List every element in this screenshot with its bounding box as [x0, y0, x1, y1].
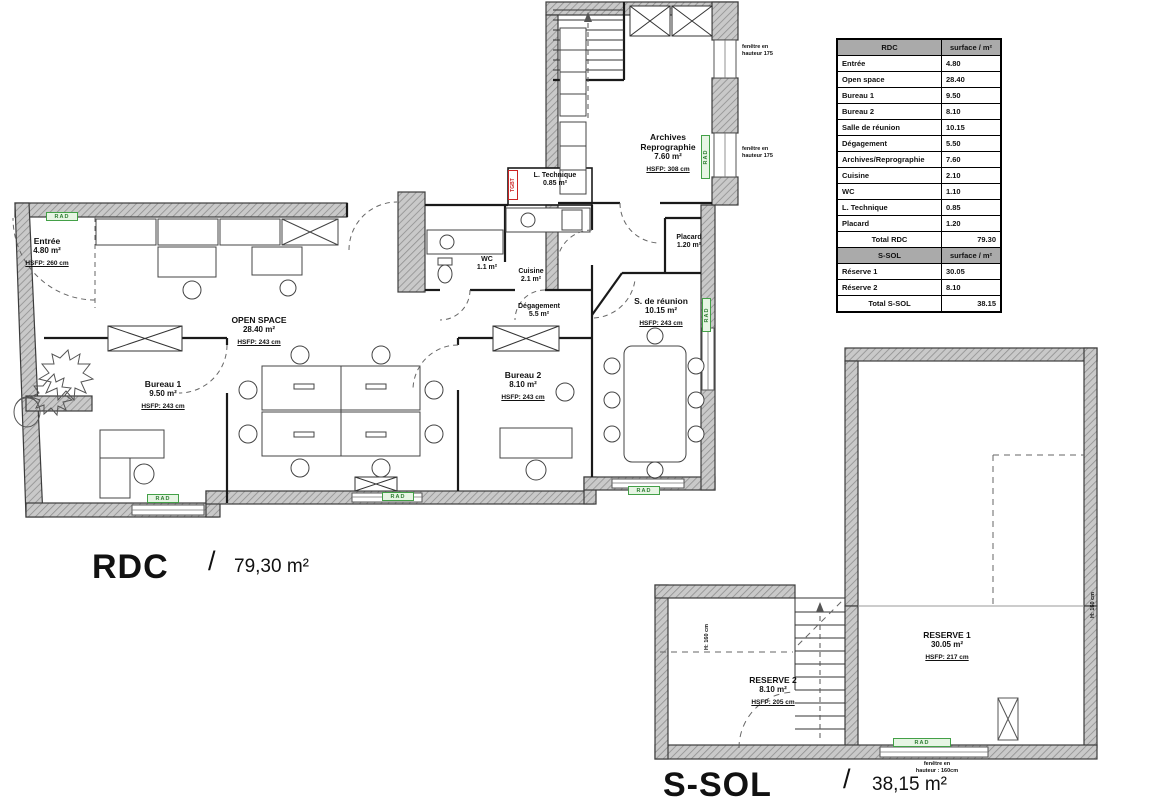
table-row: Réserve 1 30.05: [837, 264, 1001, 280]
header-cell: S-SOL: [837, 248, 942, 264]
height-note-left: H: 160 cm: [704, 624, 711, 650]
rdc-separator: /: [208, 546, 216, 577]
furniture-bureau1: [100, 430, 164, 498]
radiator-tag: RAD: [46, 212, 78, 221]
cell-value: 0.85: [942, 200, 1002, 216]
window-note-175-top: fenêtre en hauteur 175: [742, 44, 773, 58]
table-row-total-rdc: Total RDC 79.30: [837, 232, 1001, 248]
room-label-wc: WC 1.1 m²: [477, 256, 497, 273]
table-row: Bureau 2 8.10: [837, 104, 1001, 120]
window-note-160: fenêtre en hauteur : 160cm: [916, 761, 958, 775]
room-label-bureau1: Bureau 1 9.50 m² HSFP: 243 cm: [141, 379, 184, 411]
cell-value: 2.10: [942, 168, 1002, 184]
room-label-open-space: OPEN SPACE 28.40 m² HSFP: 243 cm: [231, 315, 286, 347]
room-label-l-technique: L. Technique 0.85 m²: [534, 172, 577, 189]
tgbt-panel-tag: TGBT: [508, 170, 518, 200]
cell-value: 1.10: [942, 184, 1002, 200]
radiator-tag-vertical: RAD: [701, 135, 710, 179]
fixtures-wc-cuisine: [427, 208, 590, 283]
cell-label: Placard: [837, 216, 942, 232]
furniture-meeting: [604, 328, 704, 478]
header-cell: RDC: [837, 39, 942, 56]
ssol-total-area: 38,15 m²: [872, 774, 947, 796]
cell-value: 30.05: [942, 264, 1002, 280]
radiator-tag: RAD: [893, 738, 951, 747]
table-row: Open space 28.40: [837, 72, 1001, 88]
room-label-reserve2: RESERVE 2 8.10 m² HSFP: 205 cm: [749, 675, 797, 707]
cell-value: 7.60: [942, 152, 1002, 168]
window-note-175-bottom: fenêtre en hauteur 175: [742, 146, 773, 160]
cell-value: 1.20: [942, 216, 1002, 232]
table-row: Archives/Reprographie 7.60: [837, 152, 1001, 168]
header-cell: surface / m²: [942, 39, 1002, 56]
cell-label: Réserve 1: [837, 264, 942, 280]
radiator-tag: RAD: [628, 486, 660, 495]
room-label-cuisine: Cuisine 2.1 m²: [518, 268, 543, 285]
cell-value: 8.10: [942, 280, 1002, 296]
rdc-title: RDC: [92, 548, 169, 587]
radiator-tag: RAD: [382, 492, 414, 501]
table-row: L. Technique 0.85: [837, 200, 1001, 216]
cell-label: Total RDC: [837, 232, 942, 248]
archives-shelves: [560, 28, 586, 194]
cell-value: 79.30: [942, 232, 1002, 248]
room-label-entree: Entrée 4.80 m² HSFP: 260 cm: [25, 236, 68, 268]
ssol-stairs: [795, 598, 845, 738]
cell-label: Bureau 2: [837, 104, 942, 120]
table-row-total-ssol: Total S-SOL 38.15: [837, 296, 1001, 313]
cell-label: WC: [837, 184, 942, 200]
room-label-reserve1: RESERVE 1 30.05 m² HSFP: 217 cm: [923, 630, 971, 662]
table-row: Placard 1.20: [837, 216, 1001, 232]
table-header-ssol: S-SOL surface / m²: [837, 248, 1001, 264]
header-cell: surface / m²: [942, 248, 1002, 264]
cell-label: Open space: [837, 72, 942, 88]
cell-label: Bureau 1: [837, 88, 942, 104]
cell-value: 28.40: [942, 72, 1002, 88]
room-label-reunion: S. de réunion 10.15 m² HSFP: 243 cm: [634, 296, 688, 328]
table-row: Cuisine 2.10: [837, 168, 1001, 184]
cell-value: 38.15: [942, 296, 1002, 313]
rdc-total-area: 79,30 m²: [234, 556, 309, 578]
radiator-tag: RAD: [147, 494, 179, 503]
room-label-archives: Archives Reprographie 7.60 m² HSFP: 308 …: [640, 132, 695, 174]
openspace-cabinets: [96, 219, 338, 299]
table-row: Bureau 1 9.50: [837, 88, 1001, 104]
cell-label: Réserve 2: [837, 280, 942, 296]
cell-label: Dégagement: [837, 136, 942, 152]
ssol-title: S-SOL: [663, 766, 772, 800]
surface-table: RDC surface / m² Entrée 4.80 Open space …: [836, 38, 1002, 313]
room-label-bureau2: Bureau 2 8.10 m² HSFP: 243 cm: [501, 370, 544, 402]
table-header-rdc: RDC surface / m²: [837, 39, 1001, 56]
ssol-separator: /: [843, 764, 851, 795]
cell-value: 5.50: [942, 136, 1002, 152]
cell-label: Archives/Reprographie: [837, 152, 942, 168]
ssol-dashed: [660, 455, 1084, 748]
room-label-placard: Placard 1.20 m²: [676, 234, 701, 251]
table-row: Entrée 4.80: [837, 56, 1001, 72]
furniture-open-space: [239, 346, 443, 477]
cell-value: 8.10: [942, 104, 1002, 120]
cell-label: Cuisine: [837, 168, 942, 184]
cell-value: 4.80: [942, 56, 1002, 72]
table-row: Salle de réunion 10.15: [837, 120, 1001, 136]
cell-label: Salle de réunion: [837, 120, 942, 136]
room-label-degagement: Dégagement 5.5 m²: [518, 303, 560, 320]
cell-label: Entrée: [837, 56, 942, 72]
ssol-walls: [655, 348, 1097, 759]
cell-value: 9.50: [942, 88, 1002, 104]
radiator-tag-vertical: RAD: [702, 298, 711, 332]
cell-label: Total S-SOL: [837, 296, 942, 313]
floor-plan-page: Entrée 4.80 m² HSFP: 260 cm OPEN SPACE 2…: [0, 0, 1158, 800]
height-note-right: H: 160 cm: [1090, 592, 1097, 618]
cell-value: 10.15: [942, 120, 1002, 136]
cell-label: L. Technique: [837, 200, 942, 216]
table-row: WC 1.10: [837, 184, 1001, 200]
table-row: Réserve 2 8.10: [837, 280, 1001, 296]
table-row: Dégagement 5.50: [837, 136, 1001, 152]
